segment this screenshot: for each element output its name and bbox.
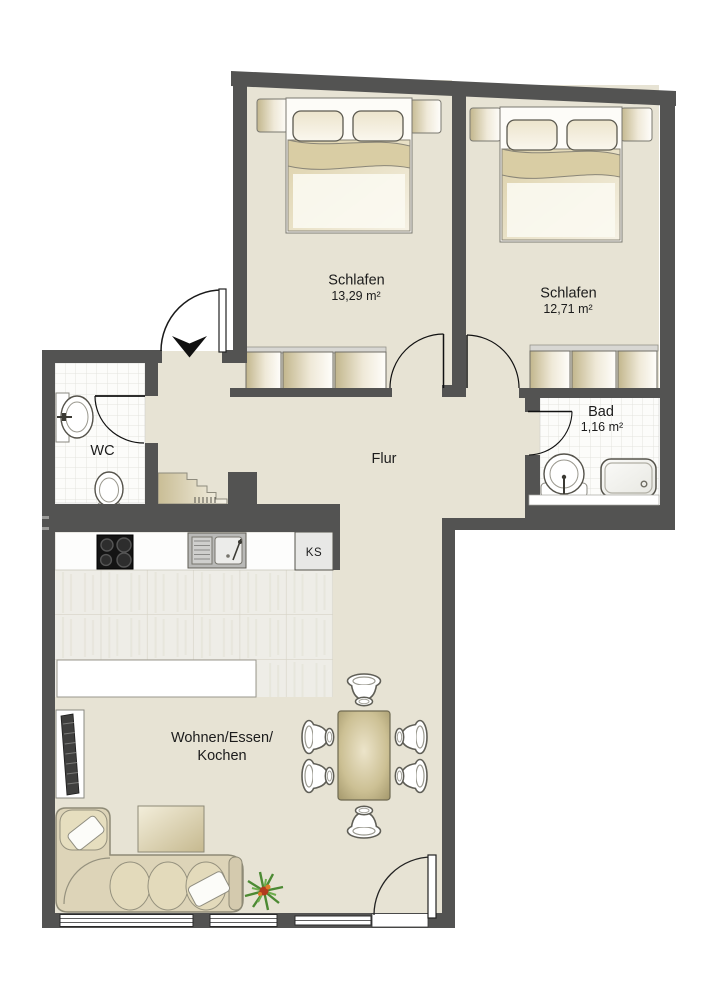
nightstand-icon xyxy=(410,100,441,133)
bedroom1-threshold xyxy=(392,388,443,397)
dining-table-icon xyxy=(338,711,390,800)
room-label-wc: WC xyxy=(90,443,114,459)
wall-wc-right-top xyxy=(145,363,158,396)
nightstand-icon xyxy=(621,108,652,141)
balcony-door-opening xyxy=(372,914,428,928)
floor-plan: Schlafen 13,29 m² Schlafen 12,71 m² WC B… xyxy=(0,0,707,1000)
tap-icon xyxy=(62,413,66,421)
wardrobe-icon xyxy=(246,347,386,389)
wall-living-right xyxy=(442,530,455,913)
wall-left xyxy=(42,350,55,928)
door-leaf xyxy=(428,855,436,918)
coffee-table-icon xyxy=(138,806,204,852)
door-leaf xyxy=(219,289,226,352)
floor-plan-canvas: Schlafen 13,29 m² Schlafen 12,71 m² WC B… xyxy=(0,0,707,1000)
wall-bad-bottom xyxy=(525,505,675,518)
window xyxy=(210,915,277,927)
wall-right xyxy=(660,97,675,530)
wall-bad-left-top xyxy=(525,388,540,412)
pillow-icon xyxy=(507,120,557,150)
wall-kitchen-edge xyxy=(333,504,340,570)
bad-window-strip xyxy=(529,495,659,505)
area-label-bad: 1,16 m² xyxy=(581,420,623,434)
window xyxy=(295,916,371,925)
pillow-icon xyxy=(567,120,617,150)
room-label-wohnen-line2: Kochen xyxy=(197,748,246,764)
pillow-icon xyxy=(293,111,343,141)
room-label-flur: Flur xyxy=(372,451,397,467)
blanket-fold xyxy=(502,149,620,178)
room-label-schlafen1: Schlafen xyxy=(328,273,384,289)
area-label-schlafen2: 12,71 m² xyxy=(543,302,592,316)
wardrobe-icon xyxy=(530,345,658,390)
wall-joint-mark xyxy=(42,527,49,530)
wall-bedroom1-left xyxy=(233,80,247,363)
stove-icon xyxy=(97,535,133,569)
wall-hall-column xyxy=(228,472,257,504)
shower-icon xyxy=(601,459,656,497)
bedroom2-threshold xyxy=(466,388,519,398)
window xyxy=(60,915,193,927)
nightstand-icon xyxy=(470,108,501,141)
blanket-fold xyxy=(288,140,410,169)
wall-bedroom-divider xyxy=(452,88,466,397)
wall-entry-left xyxy=(42,350,162,363)
kitchen-sink-icon xyxy=(188,533,246,568)
wall-wc-right-bottom xyxy=(145,443,158,505)
wall-kitchen-top xyxy=(42,504,333,532)
room-label-wohnen-line1: Wohnen/Essen/ xyxy=(171,730,274,746)
fridge-label: KS xyxy=(306,547,323,559)
bad-threshold xyxy=(525,412,540,455)
wall-bedroom1-bottom xyxy=(230,388,392,397)
entry-door xyxy=(161,289,226,358)
pillow-icon xyxy=(353,111,403,141)
kitchen-island xyxy=(57,660,256,697)
hall-living-passage xyxy=(333,504,442,532)
tv-icon xyxy=(56,710,84,798)
room-label-bad: Bad xyxy=(588,404,614,420)
room-label-schlafen2: Schlafen xyxy=(540,286,596,302)
wall-divider-foot xyxy=(442,385,466,397)
area-label-schlafen1: 13,29 m² xyxy=(331,289,380,303)
wall-bedroom2-bottom xyxy=(519,388,660,398)
nightstand-icon xyxy=(257,99,288,132)
wall-joint-mark xyxy=(42,516,49,519)
wc-threshold xyxy=(145,396,158,443)
wall-living-topright xyxy=(442,518,675,530)
windows xyxy=(60,914,428,928)
